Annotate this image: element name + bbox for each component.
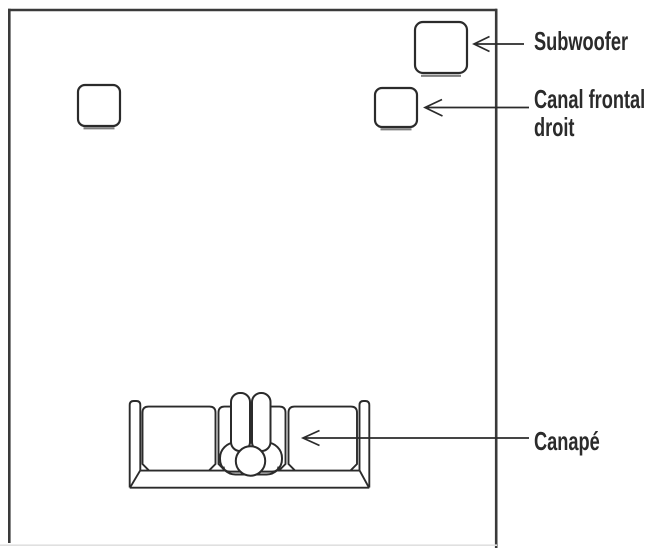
sofa-label: Canapé — [534, 427, 600, 455]
front-right-label-line1: Canal frontal — [534, 85, 645, 113]
front-right-arrow — [425, 100, 529, 117]
front-right-speaker-box — [375, 88, 417, 127]
sofa-corner-right — [360, 470, 369, 487]
room-diagram — [0, 0, 648, 548]
sofa-corner-left — [130, 470, 140, 487]
person-leg-left — [231, 393, 250, 451]
sofa-cushion-left — [143, 407, 216, 471]
person-head — [236, 446, 265, 475]
subwoofer-box — [415, 22, 467, 73]
subwoofer-label-text: Subwoofer — [534, 27, 628, 55]
speaker-placement-figure: Subwoofer Canal frontal droit Canapé — [0, 0, 648, 548]
front-right-label-line2: droit — [534, 113, 645, 141]
subwoofer-arrow — [474, 37, 524, 52]
sofa-label-text: Canapé — [534, 427, 600, 455]
front-right-label: Canal frontal droit — [534, 85, 645, 141]
person-leg-right — [252, 393, 271, 451]
subwoofer-label: Subwoofer — [534, 27, 628, 55]
front-left-speaker-box — [78, 85, 120, 126]
speaker-boxes — [78, 22, 467, 127]
